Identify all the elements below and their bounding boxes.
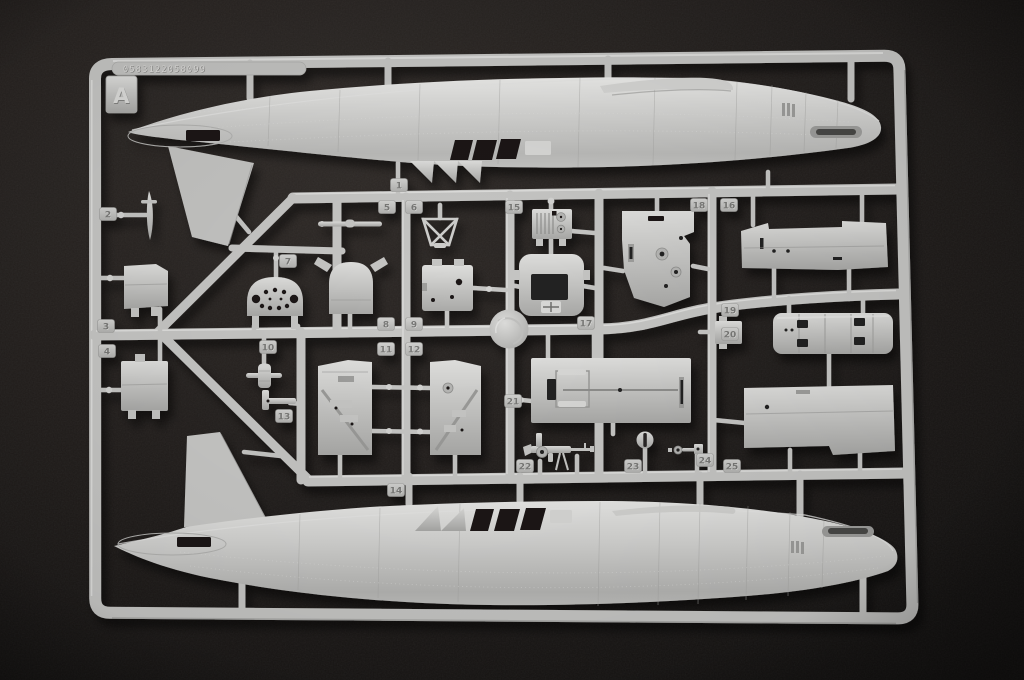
photo-of-model-kit-sprue: 0583122058099 0583122058099 A A 11223344… (0, 0, 1024, 680)
vignette-overlay (0, 0, 1024, 680)
